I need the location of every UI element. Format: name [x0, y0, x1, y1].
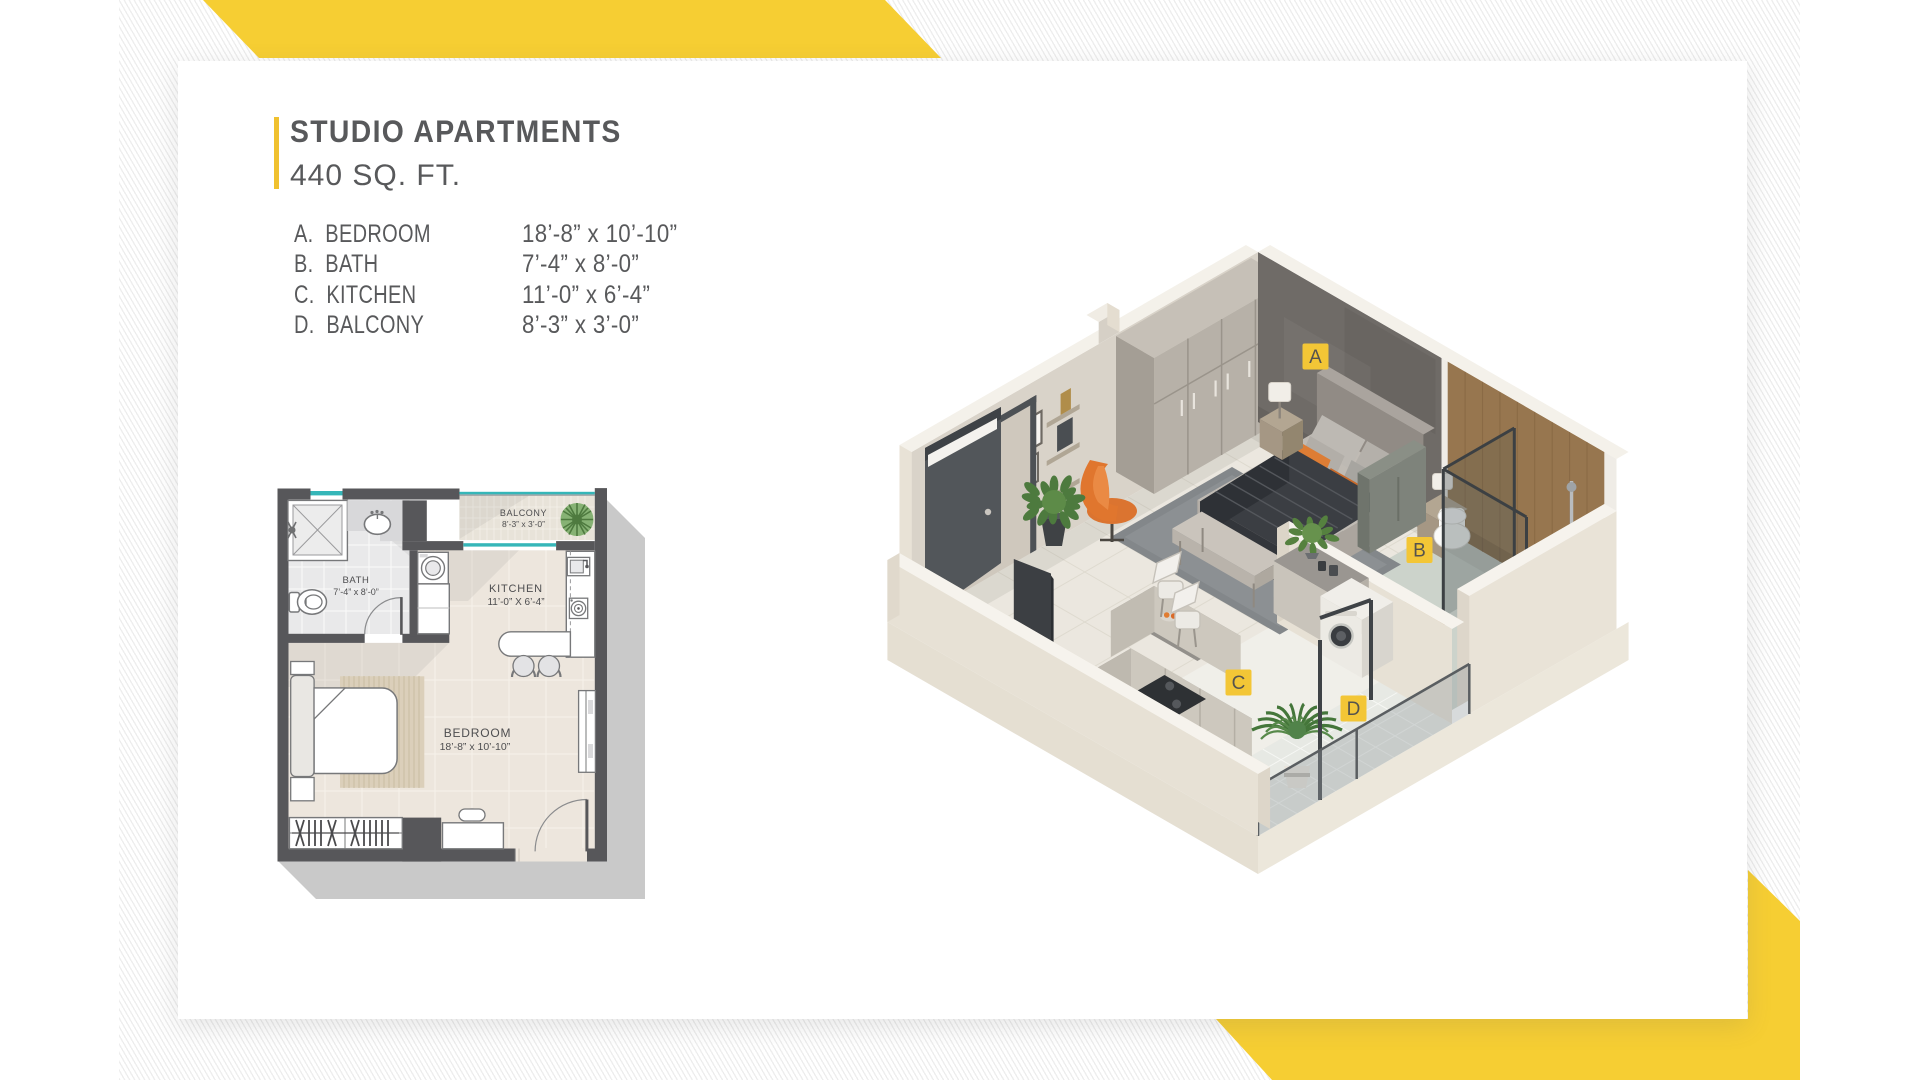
svg-text:B: B [1413, 541, 1426, 562]
svg-text:D: D [1347, 699, 1361, 720]
svg-text:A: A [1309, 347, 1322, 368]
svg-text:C: C [1232, 673, 1246, 694]
